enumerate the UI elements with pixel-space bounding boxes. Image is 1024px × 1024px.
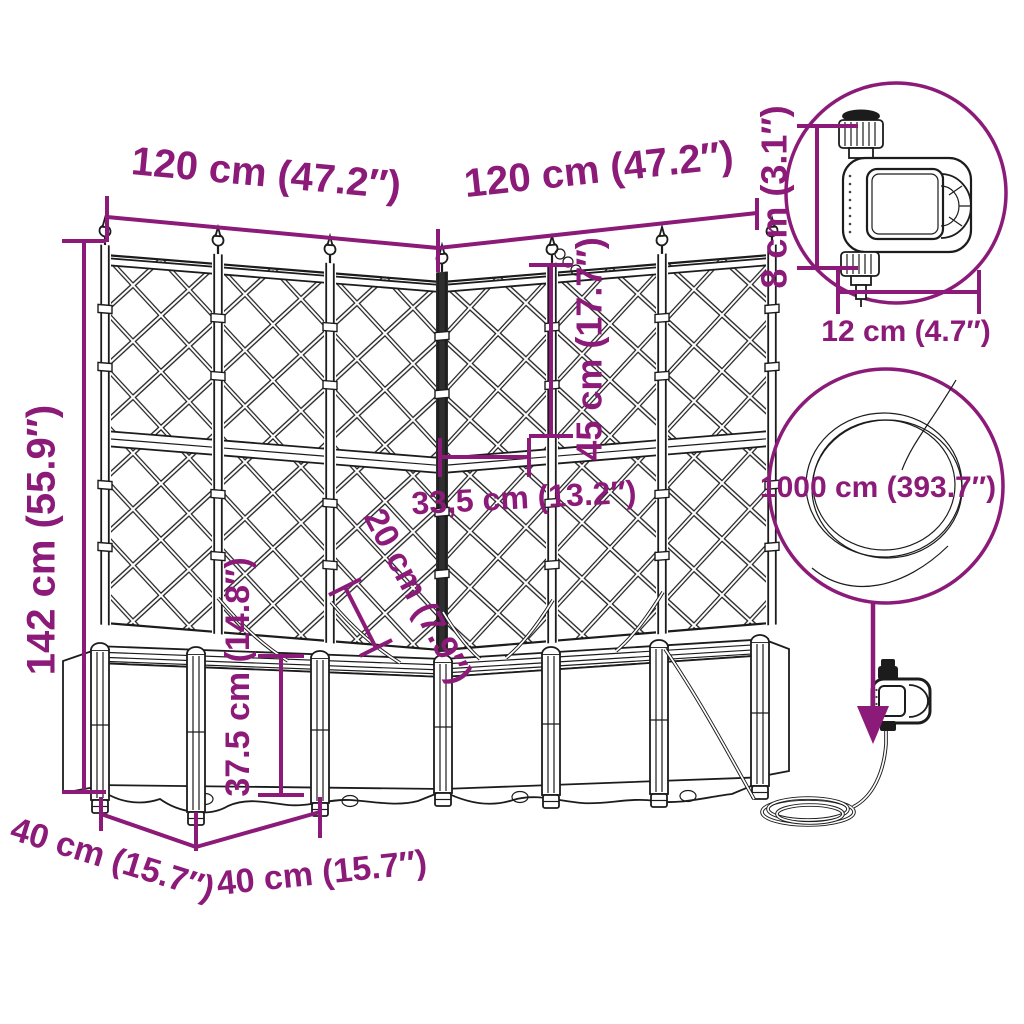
trellis-post (98, 217, 112, 625)
dim-timer-width: 12 cm (4.7″) (821, 315, 990, 348)
trellis-post (655, 226, 669, 634)
dim-left-depth: 40 cm (15.7″) (6, 810, 219, 908)
dim-hose-length: 1000 cm (393.7″) (760, 471, 996, 504)
water-timer-detail (839, 110, 971, 308)
box-trim (751, 635, 769, 799)
box-trim (311, 651, 329, 816)
dim-box-height: 37.5 cm (14.8″) (219, 557, 257, 796)
box-trim (542, 647, 560, 808)
box-trim (187, 647, 205, 825)
box-trim (650, 640, 668, 807)
planter-boxes (63, 635, 789, 825)
trellis-left-wall (98, 217, 443, 652)
trellis-post (323, 236, 337, 644)
dim-left-width: 120 cm (47.2″) (130, 139, 403, 208)
dim-right-width: 120 cm (47.2″) (462, 133, 736, 206)
dim-trellis-section: 45 cm (17.7″) (569, 237, 610, 460)
product-dimension-diagram: 142 cm (55.9″) 120 cm (47.2″) 120 cm (47… (0, 0, 1024, 1024)
box-trim (91, 643, 109, 813)
dim-right-depth: 40 cm (15.7″) (215, 843, 429, 903)
dim-total-height: 142 cm (55.9″) (20, 405, 64, 675)
dim-timer-height: 8 cm (3.1″) (754, 105, 795, 288)
